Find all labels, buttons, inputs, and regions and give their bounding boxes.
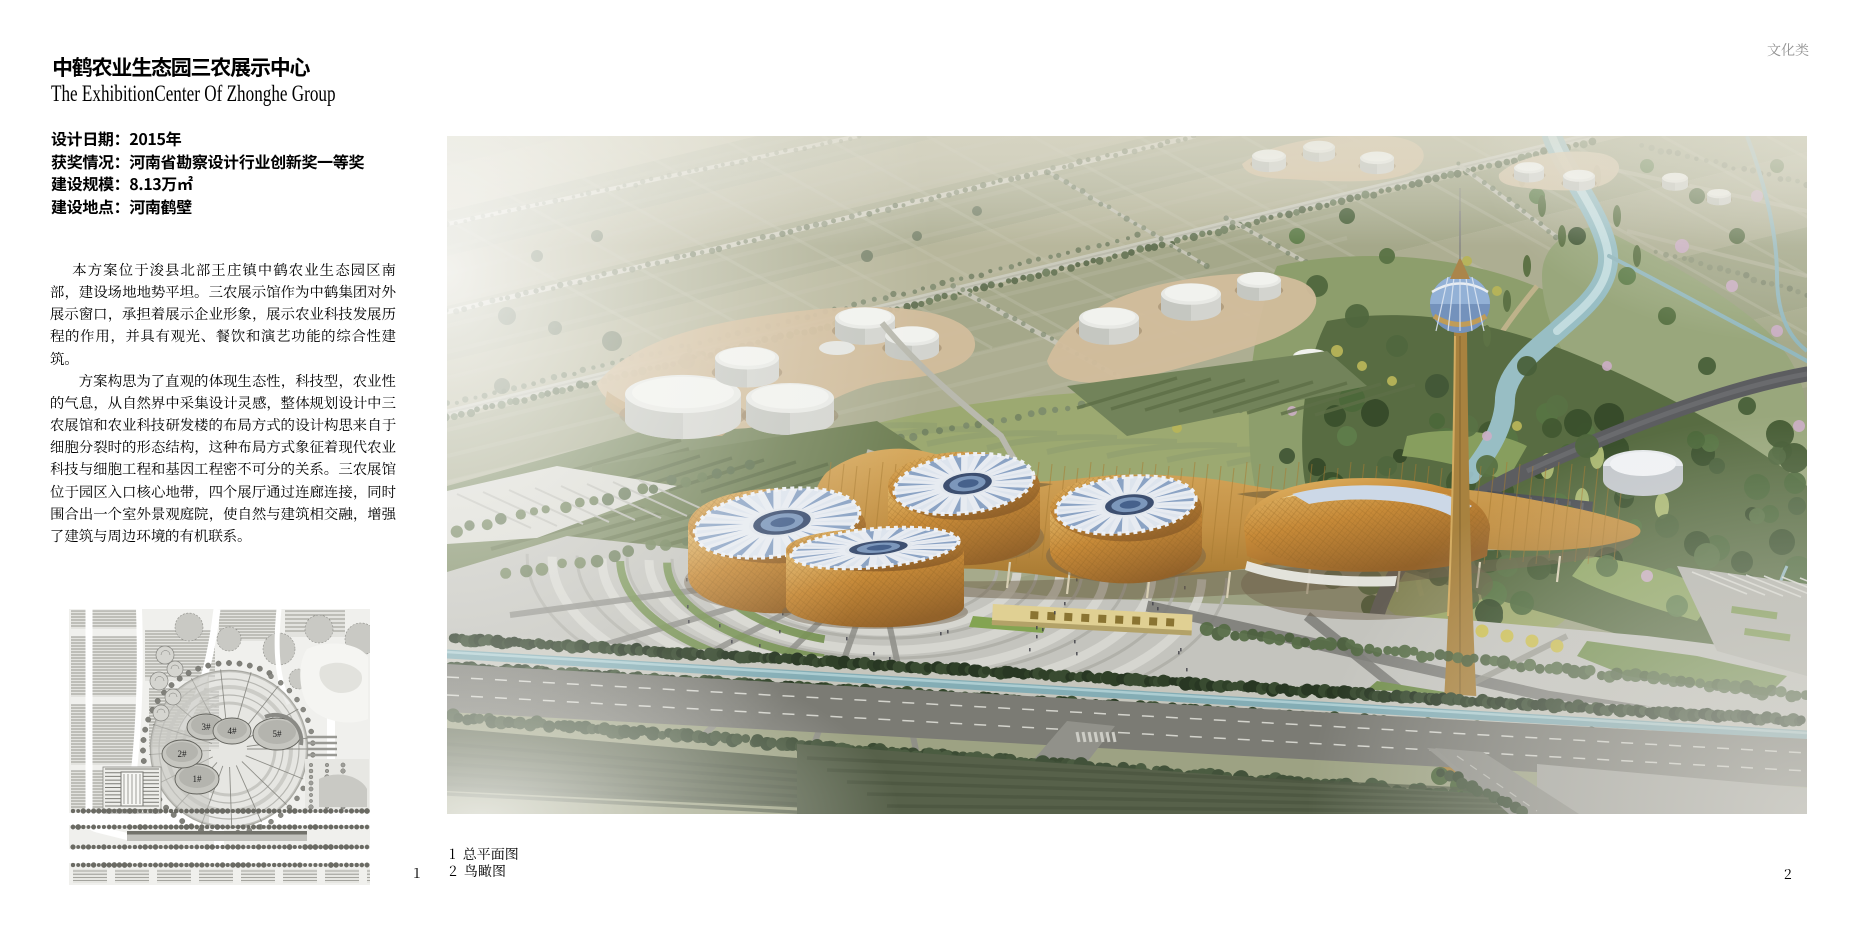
svg-text:2#: 2# bbox=[178, 749, 188, 759]
svg-text:5#: 5# bbox=[273, 729, 283, 739]
svg-text:3#: 3# bbox=[202, 722, 212, 732]
svg-text:1#: 1# bbox=[193, 774, 203, 784]
svg-text:4#: 4# bbox=[228, 726, 238, 736]
